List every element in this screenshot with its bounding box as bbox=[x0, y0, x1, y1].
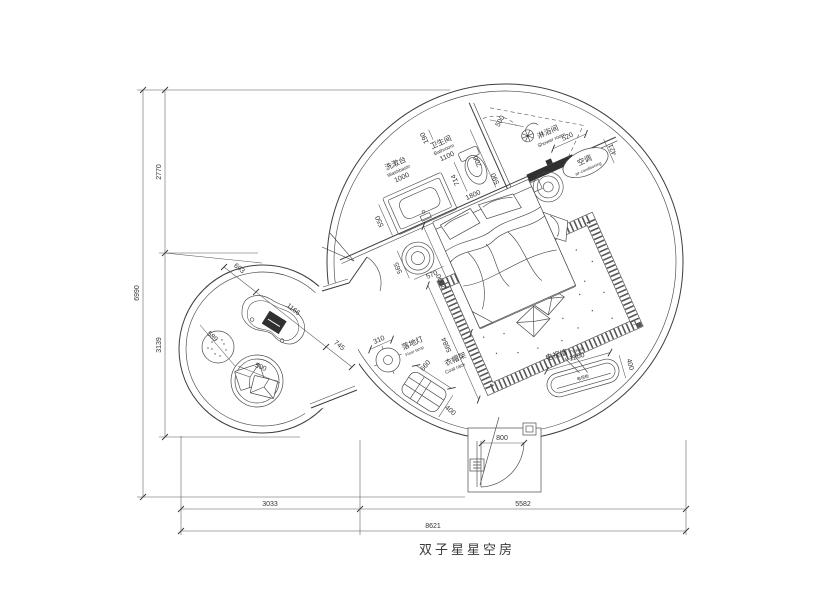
dim-bottom-right: 5582 bbox=[515, 501, 531, 508]
floor-plan: 5684 1800 550 洗漱台 Washbasin 1000 bbox=[0, 0, 837, 592]
dim-left-bottom: 3139 bbox=[156, 337, 163, 353]
bed bbox=[432, 172, 593, 329]
kidney-table bbox=[236, 290, 311, 349]
dim-lamp: 310 bbox=[372, 335, 386, 346]
dim-wall-seg: 590 bbox=[490, 172, 501, 186]
dim-niche: 190 bbox=[419, 131, 430, 145]
bathroom-label: 卫生间 Bathroom 1100 bbox=[428, 133, 459, 165]
dim-tv-width: 400 bbox=[625, 358, 635, 371]
dim-rack-width: 400 bbox=[443, 404, 457, 417]
dim-shower-door: 500 bbox=[495, 115, 507, 129]
tv-wall-label-cn: 电视墙 bbox=[544, 346, 569, 362]
washbasin-label: 洗漱台 Washbasin 1000 bbox=[382, 153, 415, 186]
left-dimensions: 6990 2770 3139 bbox=[134, 87, 465, 500]
corridor-door bbox=[349, 257, 381, 291]
interior-block: 5684 1800 550 洗漱台 Washbasin 1000 bbox=[303, 54, 692, 431]
dim-bed-length: 2000 bbox=[436, 273, 449, 290]
floor-plan-svg: 5684 1800 550 洗漱台 Washbasin 1000 bbox=[0, 0, 837, 592]
drawing-title: 双子星星空房 bbox=[419, 542, 515, 557]
dim-door: 800 bbox=[496, 435, 508, 442]
toilet bbox=[458, 146, 491, 188]
dim-overall-width: 8621 bbox=[425, 523, 441, 530]
dim-rack-length: 660 bbox=[419, 359, 432, 373]
bottom-dimensions: 3033 5582 8621 bbox=[178, 436, 689, 535]
dim-bottom-left: 3033 bbox=[262, 501, 278, 508]
dim-left-top: 2770 bbox=[156, 164, 163, 180]
laptop bbox=[262, 311, 287, 334]
dim-gap-a: 693 bbox=[232, 262, 246, 275]
dim-overall-height: 6990 bbox=[134, 285, 141, 301]
coat-rack: 660 400 衣帽架 Coat rack bbox=[397, 349, 468, 417]
